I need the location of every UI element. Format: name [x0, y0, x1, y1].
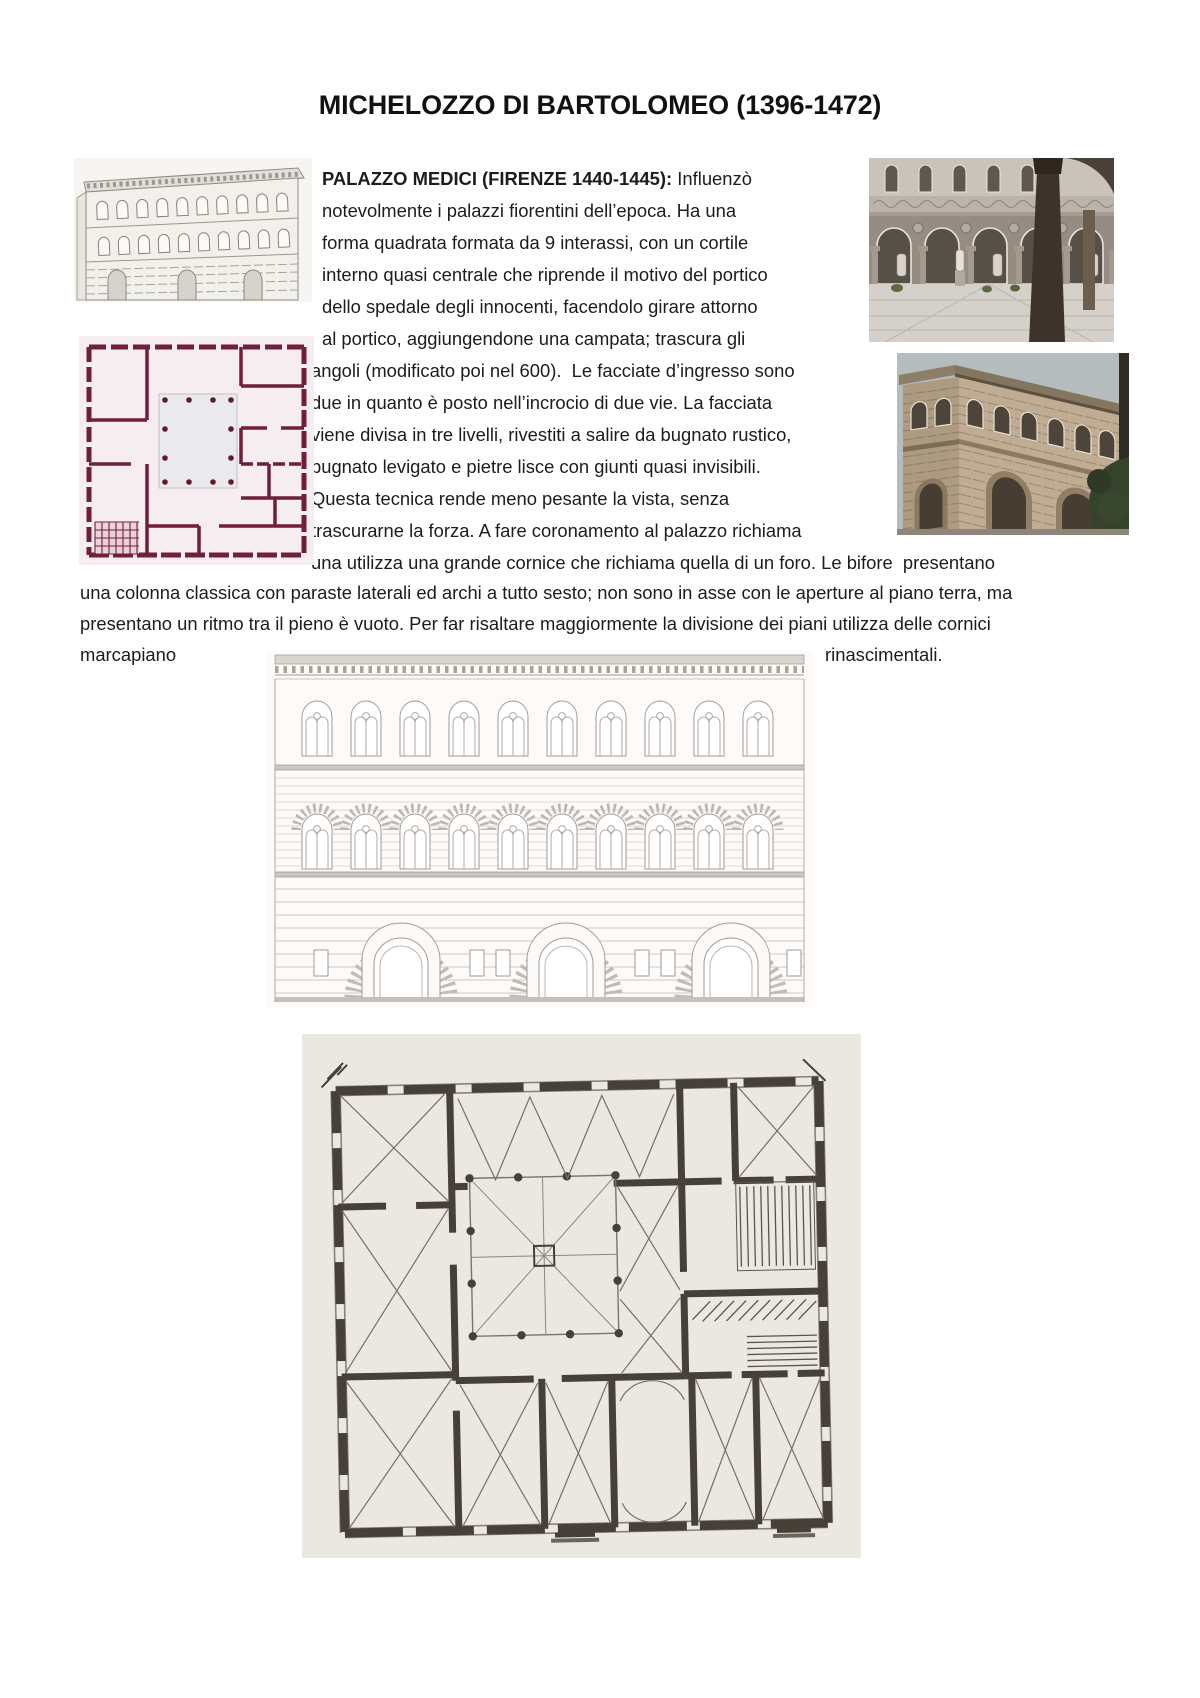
body-text-line: viene divisa in tre livelli, rivestiti a…	[311, 423, 791, 447]
courtyard-photo-figure	[869, 158, 1114, 342]
paragraph-heading: PALAZZO MEDICI (FIRENZE 1440-1445):	[322, 168, 672, 189]
body-text-line: interno quasi centrale che riprende il m…	[322, 263, 768, 287]
body-text-line: rinascimentali.	[825, 643, 943, 667]
body-text-line: bugnato levigato e pietre lisce con giun…	[311, 455, 761, 479]
body-text-line: una utilizza una grande cornice che rich…	[311, 551, 995, 575]
body-text-line: al portico, aggiungendone una campata; t…	[322, 327, 745, 351]
body-text-line: presentano un ritmo tra il pieno è vuoto…	[80, 612, 991, 636]
body-text-line: trascurarne la forza. A fare coronamento…	[311, 519, 802, 543]
paragraph-heading-tail: Influenzò	[672, 168, 752, 189]
body-text-line: due in quanto è posto nell’incrocio di d…	[311, 391, 772, 415]
ground-floor-plan-figure	[302, 1034, 861, 1558]
body-text-line: Questa tecnica rende meno pesante la vis…	[311, 487, 729, 511]
body-text-line: angoli (modificato poi nel 600). Le facc…	[311, 359, 795, 383]
page-title: MICHELOZZO DI BARTOLOMEO (1396-1472)	[0, 90, 1200, 121]
facade-elevation-figure	[266, 650, 813, 1007]
body-text-line: una colonna classica con paraste lateral…	[80, 581, 1012, 605]
palazzo-exterior-engraving-figure	[74, 158, 312, 302]
body-text-line: PALAZZO MEDICI (FIRENZE 1440-1445): Infl…	[322, 167, 752, 191]
floor-plan-drawing-figure	[79, 336, 314, 565]
body-text-line: marcapiano	[80, 643, 176, 667]
document-page: MICHELOZZO DI BARTOLOMEO (1396-1472) PAL…	[0, 0, 1200, 1698]
body-text-line: forma quadrata formata da 9 interassi, c…	[322, 231, 748, 255]
body-text-line: notevolmente i palazzi fiorentini dell’e…	[322, 199, 736, 223]
body-text-line: dello spedale degli innocenti, facendolo…	[322, 295, 758, 319]
street-corner-photo-figure	[897, 353, 1129, 535]
